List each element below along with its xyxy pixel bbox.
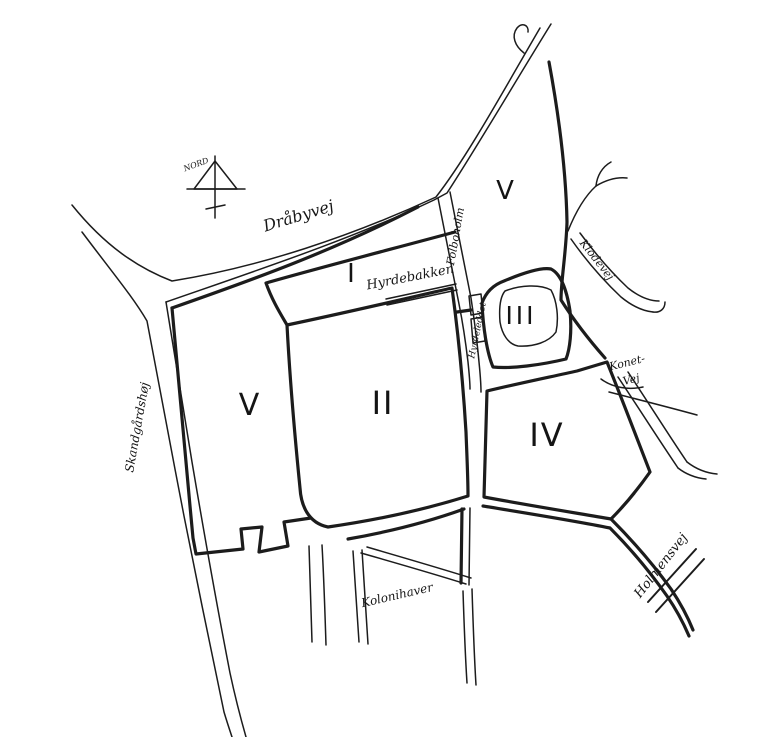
zone-3-numeral: III (505, 301, 536, 330)
label-klodevej: Klodevej (576, 236, 617, 283)
road-konetvej-edge1 (618, 377, 678, 468)
compass-label: NORD (181, 156, 210, 174)
road-kolonihaver-diag-edge1 (361, 553, 466, 584)
road-draabyvej-north-edge (72, 28, 540, 281)
label-draabyvej: Dråbyvej (260, 196, 336, 236)
road-klodevej-end-curl (653, 302, 665, 312)
road-kolonihaver-right-edge2 (472, 589, 476, 685)
road-konetvej-tail1 (678, 468, 706, 479)
zone-5-west-boundary (172, 308, 311, 554)
label-konetvej-line2: Vej (621, 371, 641, 388)
label-kolonihaver: Kolonihaver (359, 580, 435, 611)
map-drawing: NORD Dråbyvej Folboholm Hyrdebakken Hyrd… (0, 0, 777, 737)
zone-1-numeral: I (347, 259, 355, 289)
zone-2-numeral: II (372, 384, 395, 422)
label-holmensvej: Holmensvej (631, 531, 691, 602)
road-klodevej-fork-stem (568, 186, 596, 231)
road-kolonihaver-v1-edge1 (309, 546, 312, 642)
zone-4-numeral: IV (529, 416, 564, 454)
road-kolonihaver-right-upper (469, 508, 470, 585)
road-hyrdebakken-edge2 (387, 290, 457, 305)
label-konetvej-line1: Konet- (607, 352, 647, 374)
road-west-west-edge (82, 232, 232, 737)
road-klodevej-fork-right (596, 178, 627, 186)
road-fork-hook-icon (514, 25, 528, 53)
road-linework (72, 24, 717, 737)
label-skandgaardshoej: Skandgårdshøj (121, 381, 152, 474)
compass-rose: NORD (181, 156, 245, 218)
zone-5-north-numeral: V (496, 176, 514, 206)
road-kolonihaver-v2-edge1 (353, 551, 359, 642)
zone-5-west-numeral: V (239, 388, 260, 423)
road-kolonihaver-diag-edge2 (367, 547, 471, 578)
hand-drawn-zone-map: NORD Dråbyvej Folboholm Hyrdebakken Hyrd… (0, 0, 777, 737)
zone-3-connector (457, 310, 471, 312)
road-kolonihaver-right-edge1 (463, 591, 467, 683)
road-konetvej-edge2 (628, 372, 687, 462)
zone-2-spur-vertical (461, 509, 462, 583)
parcel-boundaries (172, 62, 693, 636)
road-kolonihaver-v1-edge2 (322, 545, 326, 645)
road-konetvej-tail2 (687, 462, 717, 474)
road-draabyvej-south-edge (166, 24, 551, 302)
